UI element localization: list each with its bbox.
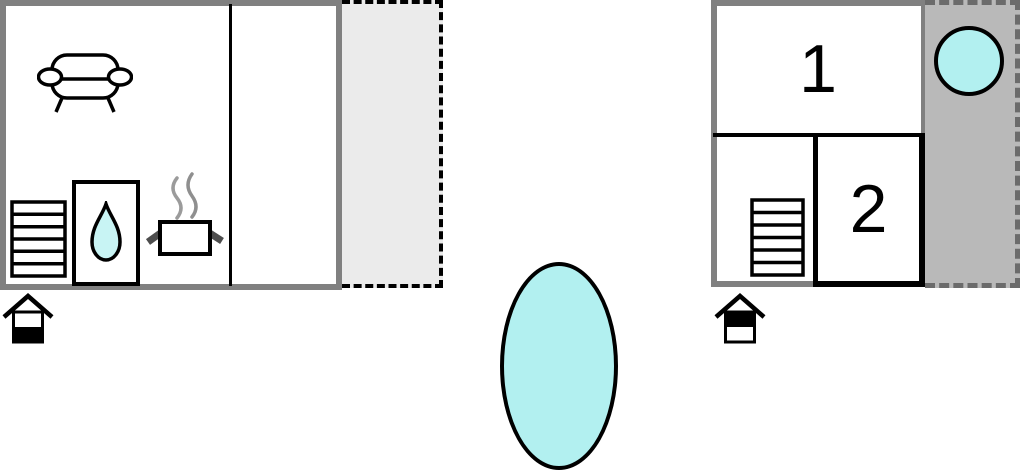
- steam-icon: [173, 178, 181, 218]
- stairs-icon-right: [750, 198, 805, 277]
- upper-floor-house-icon: [714, 292, 766, 346]
- steam-icon: [188, 174, 196, 217]
- water-drop-icon: [88, 201, 124, 265]
- room-2: 2: [818, 137, 919, 281]
- stairs-icon-left: [10, 200, 67, 278]
- cooking-pot-icon: [144, 170, 226, 256]
- room-1-label: 1: [799, 35, 837, 103]
- room-2-label: 2: [850, 175, 888, 243]
- room-2-bottom-wall: [813, 281, 925, 287]
- left-unit-interior-wall: [229, 4, 232, 286]
- room-1: 1: [717, 4, 919, 133]
- hot-tub-circle-icon: [934, 26, 1004, 96]
- floor-plan: 1 2: [0, 0, 1024, 473]
- sofa-icon: [37, 52, 133, 114]
- shower-cabin: [72, 180, 140, 286]
- pool: [500, 262, 618, 470]
- terrace-left: [342, 0, 443, 288]
- lower-floor-house-icon: [2, 292, 54, 346]
